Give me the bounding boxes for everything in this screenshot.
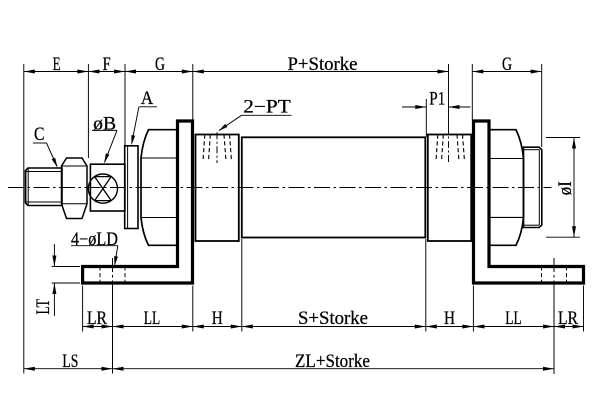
svg-text:LR: LR — [87, 309, 108, 329]
svg-text:LL: LL — [505, 309, 522, 329]
svg-text:F: F — [103, 55, 111, 75]
svg-text:4−øLD: 4−øLD — [71, 230, 118, 250]
svg-text:C: C — [34, 125, 45, 145]
svg-text:LS: LS — [62, 352, 78, 372]
svg-text:2−PT: 2−PT — [243, 98, 291, 118]
svg-text:P+Storke: P+Storke — [288, 55, 358, 75]
svg-text:H: H — [444, 309, 455, 329]
svg-text:E: E — [53, 55, 61, 75]
svg-text:S+Storke: S+Storke — [298, 309, 368, 329]
svg-text:øI: øI — [556, 181, 576, 195]
svg-text:H: H — [212, 309, 223, 329]
svg-text:G: G — [502, 55, 512, 75]
svg-text:øB: øB — [93, 115, 116, 135]
svg-text:P1: P1 — [429, 90, 445, 110]
svg-text:LR: LR — [558, 309, 579, 329]
svg-text:G: G — [155, 55, 165, 75]
svg-text:A: A — [141, 89, 154, 109]
svg-text:LL: LL — [144, 309, 161, 329]
svg-text:ZL+Storke: ZL+Storke — [295, 352, 370, 372]
svg-text:LT: LT — [34, 299, 54, 315]
